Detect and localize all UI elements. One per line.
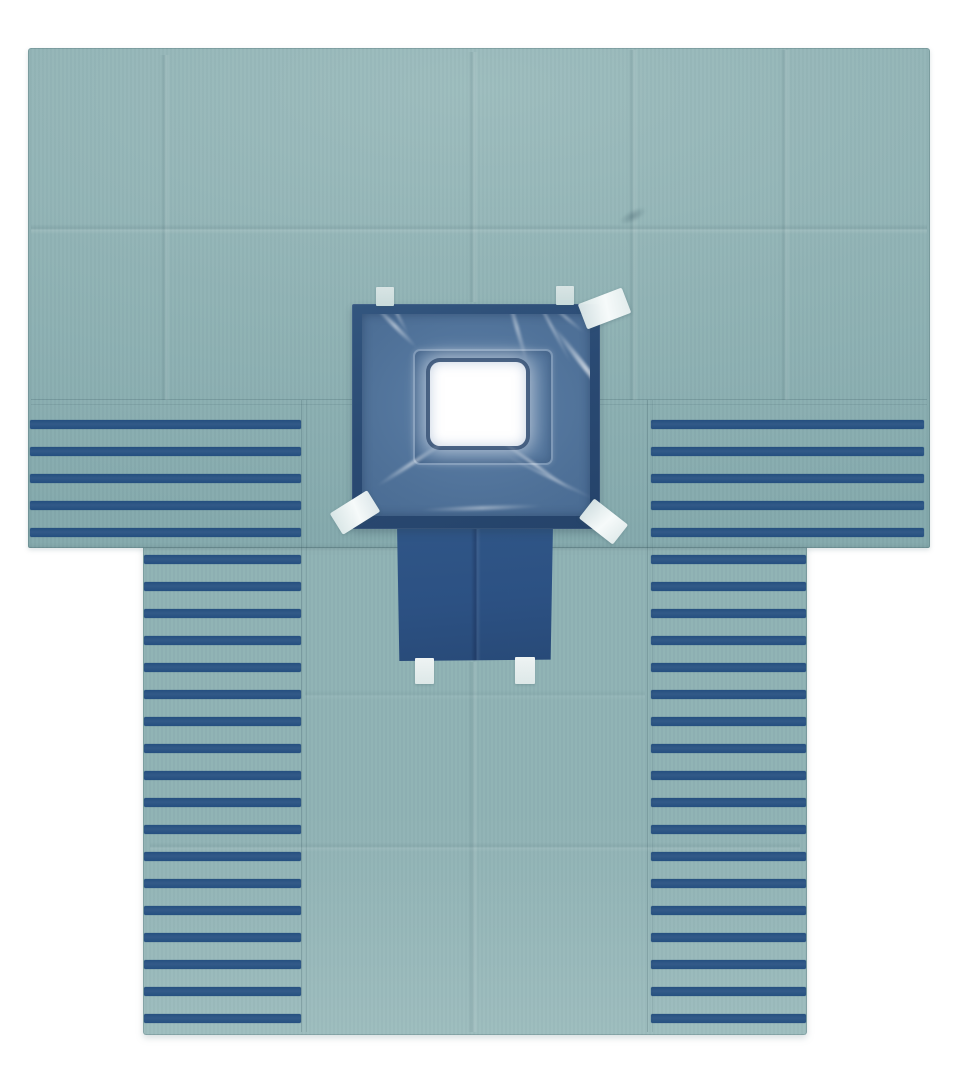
fold-crease: [150, 842, 800, 852]
left-column-stripe: [144, 609, 301, 618]
right-column-stripe: [651, 771, 806, 780]
right-column-stripe: [651, 933, 806, 942]
left-column-stripe: [144, 771, 301, 780]
left-column-stripe: [144, 555, 301, 564]
right-wing-stripe: [651, 528, 924, 537]
left-vertical-stitch-seam: [301, 400, 307, 1032]
incise-film: [362, 314, 590, 516]
left-wing-stripe: [30, 474, 301, 483]
pouch-tape-tab-left: [415, 658, 434, 684]
film-specular-streak: [420, 504, 544, 512]
left-column-stripe: [144, 717, 301, 726]
right-column-stripe: [651, 987, 806, 996]
left-column-stripe: [144, 906, 301, 915]
right-column-stripe: [651, 960, 806, 969]
right-vertical-stitch-seam: [647, 400, 653, 1032]
left-column-stripe: [144, 744, 301, 753]
right-column-stripe: [651, 879, 806, 888]
left-column-stripe: [144, 636, 301, 645]
right-column-stripe: [651, 555, 806, 564]
left-column-stripe: [144, 582, 301, 591]
left-wing-stripe: [30, 420, 301, 429]
fenestration-panel: [352, 304, 600, 529]
left-column-stripe: [144, 879, 301, 888]
left-wing-stripe: [30, 447, 301, 456]
left-column-stripe: [144, 852, 301, 861]
right-column-stripe: [651, 744, 806, 753]
fold-crease: [305, 690, 645, 700]
left-column-stripe: [144, 987, 301, 996]
right-column-stripe: [651, 852, 806, 861]
left-column-stripe: [144, 825, 301, 834]
right-column-stripe: [651, 663, 806, 672]
film-specular-streak: [372, 314, 419, 349]
left-wing-stripe: [30, 528, 301, 537]
pouch-tape-tab-right: [515, 657, 535, 684]
right-column-stripe: [651, 690, 806, 699]
right-wing-stripe: [651, 474, 924, 483]
right-column-stripe: [651, 609, 806, 618]
right-column-stripe: [651, 906, 806, 915]
pouch-crease: [471, 523, 481, 661]
right-column-stripe: [651, 582, 806, 591]
fenestration-aperture: [430, 362, 526, 446]
right-column-stripe: [651, 798, 806, 807]
left-column-stripe: [144, 798, 301, 807]
right-column-stripe: [651, 717, 806, 726]
left-column-stripe: [144, 663, 301, 672]
right-wing-stripe: [651, 501, 924, 510]
right-column-stripe: [651, 1014, 806, 1023]
right-column-stripe: [651, 636, 806, 645]
left-column-stripe: [144, 1014, 301, 1023]
right-wing-stripe: [651, 420, 924, 429]
instrument-pouch: [397, 523, 553, 661]
fold-crease: [468, 52, 478, 302]
fold-crease: [31, 224, 927, 234]
right-column-stripe: [651, 825, 806, 834]
left-column-stripe: [144, 690, 301, 699]
left-column-stripe: [144, 933, 301, 942]
left-wing-stripe: [30, 501, 301, 510]
right-wing-stripe: [651, 447, 924, 456]
top-tape-tab-left: [376, 287, 394, 306]
left-column-stripe: [144, 960, 301, 969]
top-tape-tab-right: [556, 286, 574, 305]
surgical-drape-photo: Product photo on a white background of a…: [0, 0, 960, 1088]
